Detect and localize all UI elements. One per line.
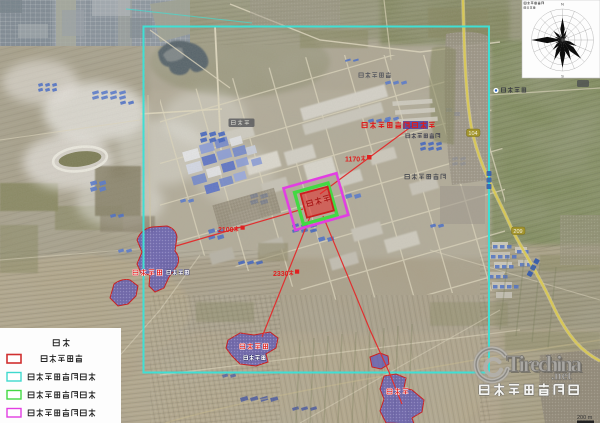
svg-text:209: 209 xyxy=(513,229,522,235)
svg-text:200 m: 200 m xyxy=(577,415,593,421)
svg-text:2100: 2100 xyxy=(218,227,234,234)
svg-text:S: S xyxy=(561,74,564,79)
svg-text:.net: .net xyxy=(551,368,572,383)
svg-text:2330: 2330 xyxy=(273,271,289,278)
svg-text:1170: 1170 xyxy=(345,157,360,164)
svg-text:104: 104 xyxy=(468,131,477,137)
svg-text:N: N xyxy=(561,2,564,7)
